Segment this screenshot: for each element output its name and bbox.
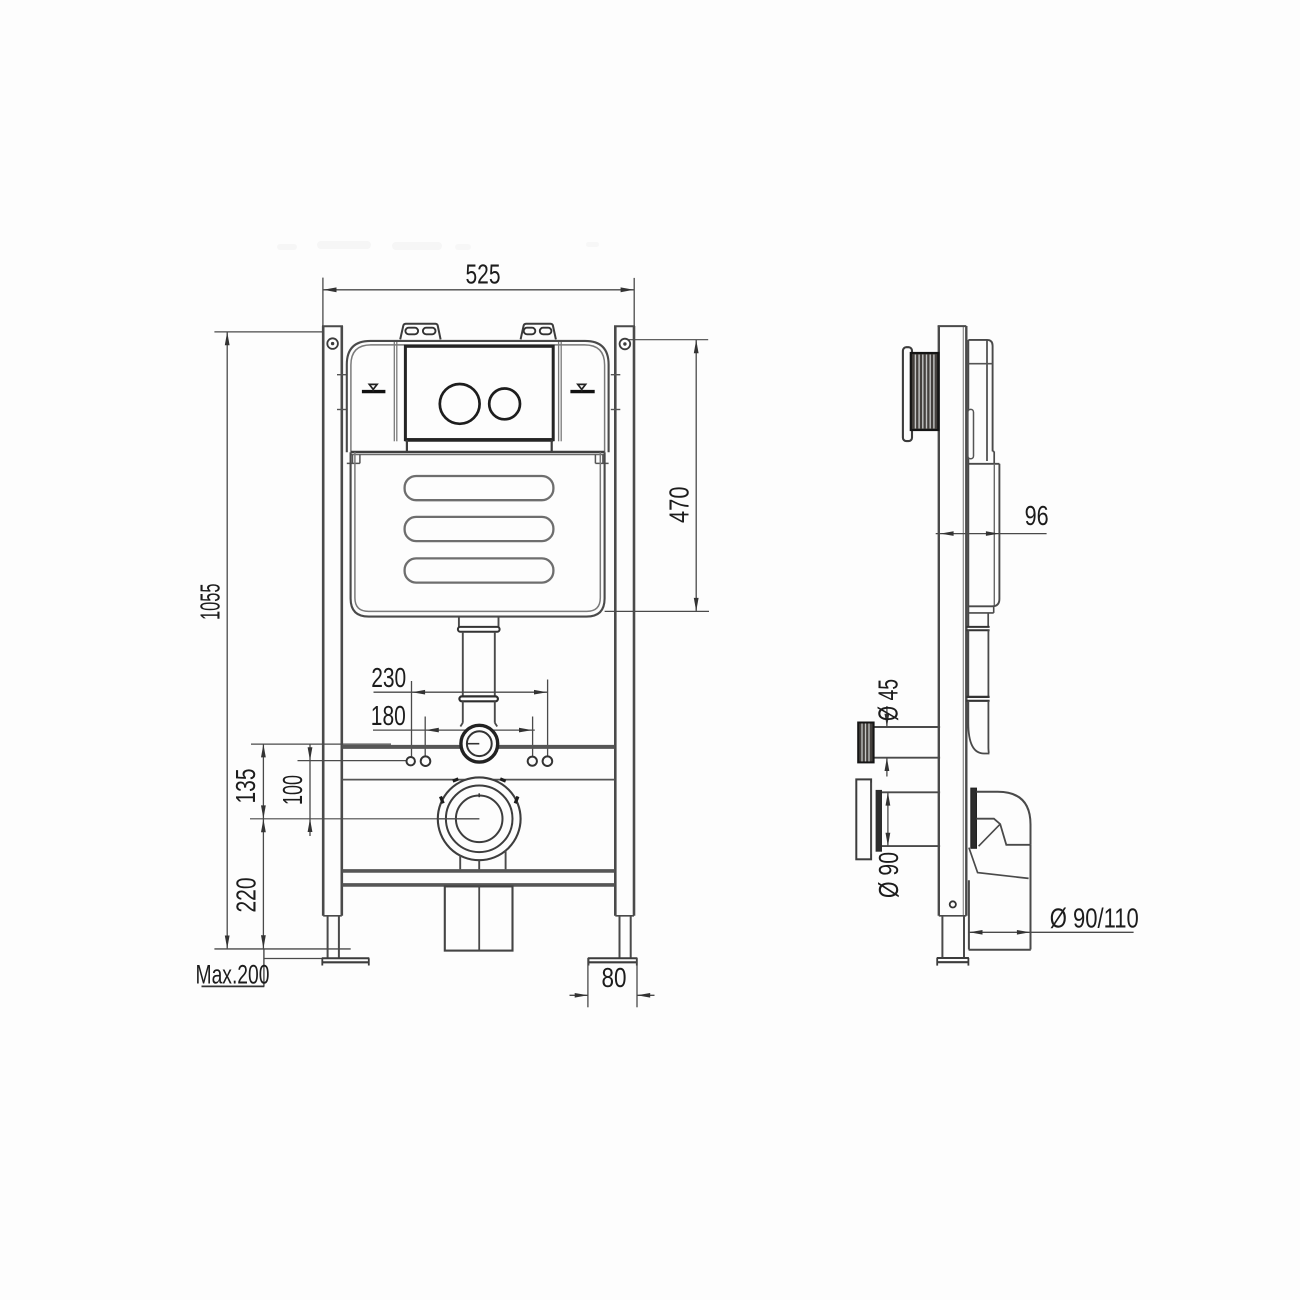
svg-text:Ø 90/110: Ø 90/110: [1050, 903, 1139, 934]
svg-text:Ø 45: Ø 45: [873, 679, 904, 721]
svg-text:1055: 1055: [195, 584, 226, 621]
svg-text:470: 470: [664, 487, 695, 524]
svg-text:Max.200: Max.200: [196, 960, 270, 990]
svg-text:96: 96: [1025, 500, 1049, 531]
svg-text:80: 80: [602, 962, 627, 993]
svg-text:Ø 90: Ø 90: [873, 852, 904, 898]
svg-text:230: 230: [371, 662, 406, 693]
svg-text:525: 525: [466, 259, 501, 290]
svg-text:220: 220: [231, 878, 262, 913]
svg-text:135: 135: [230, 769, 261, 804]
svg-text:100: 100: [277, 775, 308, 805]
svg-text:180: 180: [371, 700, 406, 731]
